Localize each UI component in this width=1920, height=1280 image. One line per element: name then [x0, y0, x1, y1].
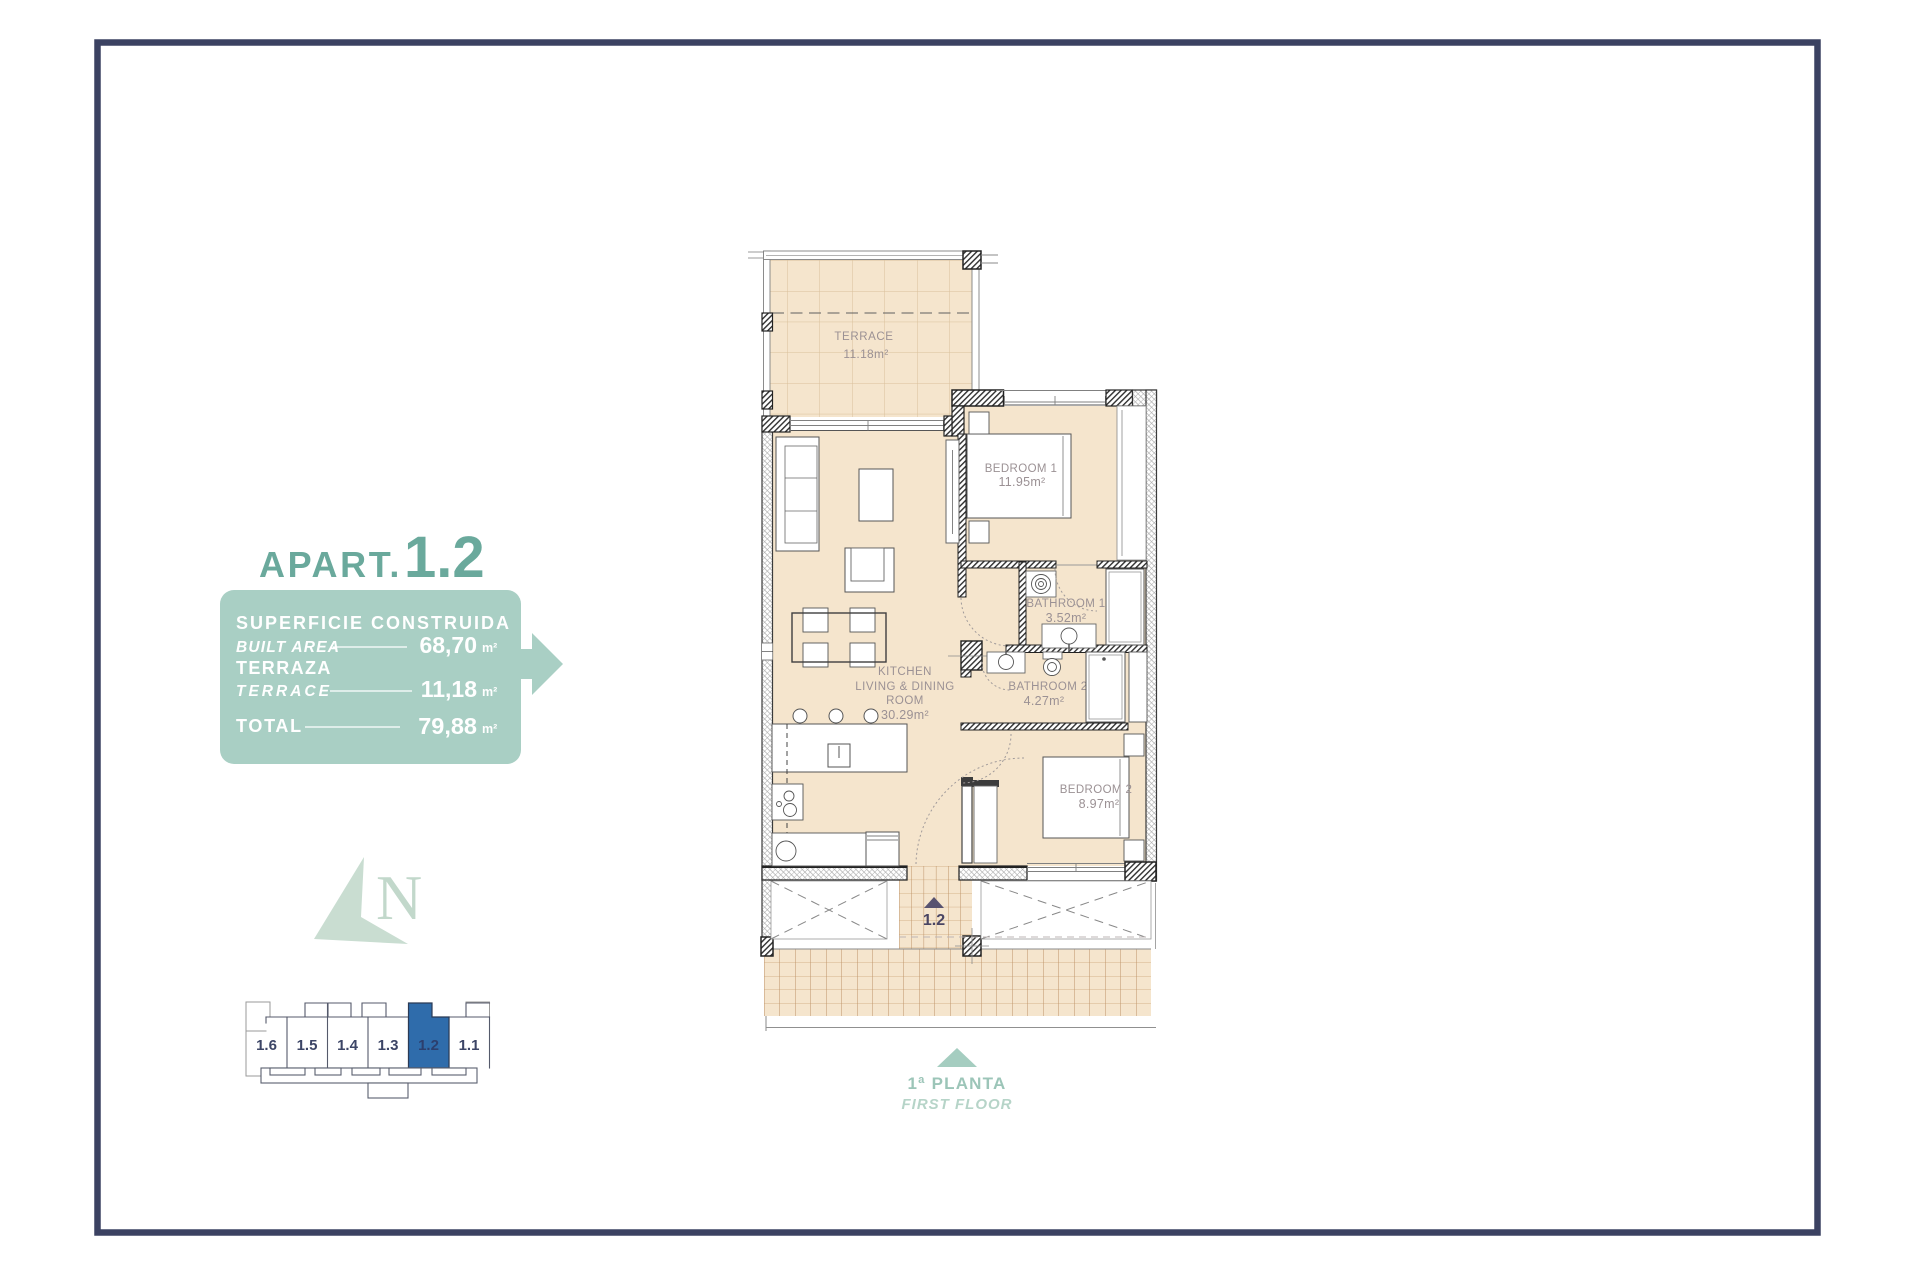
svg-text:SUPERFICIE CONSTRUIDA: SUPERFICIE CONSTRUIDA — [236, 613, 511, 633]
svg-text:TERRACE: TERRACE — [834, 331, 893, 343]
svg-text:ROOM: ROOM — [886, 695, 924, 707]
svg-text:1.3: 1.3 — [378, 1037, 399, 1054]
svg-text:1.5: 1.5 — [297, 1037, 318, 1054]
svg-text:APART.: APART. — [259, 544, 402, 585]
svg-text:BEDROOM 1: BEDROOM 1 — [985, 463, 1058, 475]
svg-text:30.29m²: 30.29m² — [881, 708, 929, 722]
svg-text:11.18m²: 11.18m² — [843, 347, 888, 361]
svg-text:KITCHEN: KITCHEN — [878, 666, 932, 678]
svg-text:1.2: 1.2 — [923, 912, 945, 929]
svg-text:TERRAZA: TERRAZA — [236, 658, 332, 678]
svg-text:1.2: 1.2 — [418, 1037, 439, 1054]
svg-text:BEDROOM 2: BEDROOM 2 — [1060, 784, 1133, 796]
svg-text:11,18: 11,18 — [421, 676, 477, 702]
svg-text:TERRACE: TERRACE — [236, 683, 332, 700]
svg-text:3.52m²: 3.52m² — [1046, 611, 1087, 625]
svg-text:4.27m²: 4.27m² — [1024, 694, 1065, 708]
svg-text:BATHROOM 2: BATHROOM 2 — [1008, 681, 1087, 693]
svg-text:m²: m² — [482, 685, 497, 699]
svg-text:N: N — [376, 862, 422, 933]
svg-text:BUILT AREA: BUILT AREA — [236, 639, 340, 656]
svg-text:m²: m² — [482, 641, 497, 655]
svg-text:11.95m²: 11.95m² — [998, 475, 1045, 489]
svg-text:LIVING & DINING: LIVING & DINING — [855, 681, 955, 693]
svg-text:TOTAL: TOTAL — [236, 716, 303, 736]
svg-text:1.1: 1.1 — [459, 1037, 480, 1054]
svg-text:1.6: 1.6 — [256, 1037, 277, 1054]
svg-text:FIRST FLOOR: FIRST FLOOR — [902, 1096, 1013, 1113]
svg-text:8.97m²: 8.97m² — [1079, 797, 1120, 811]
svg-text:m²: m² — [482, 722, 497, 736]
svg-text:68,70: 68,70 — [419, 632, 477, 658]
svg-text:1ª PLANTA: 1ª PLANTA — [908, 1074, 1007, 1093]
svg-text:79,88: 79,88 — [418, 713, 477, 739]
svg-text:BATHROOM 1: BATHROOM 1 — [1026, 598, 1105, 610]
svg-text:1.4: 1.4 — [337, 1037, 359, 1054]
svg-text:1.2: 1.2 — [404, 525, 485, 590]
